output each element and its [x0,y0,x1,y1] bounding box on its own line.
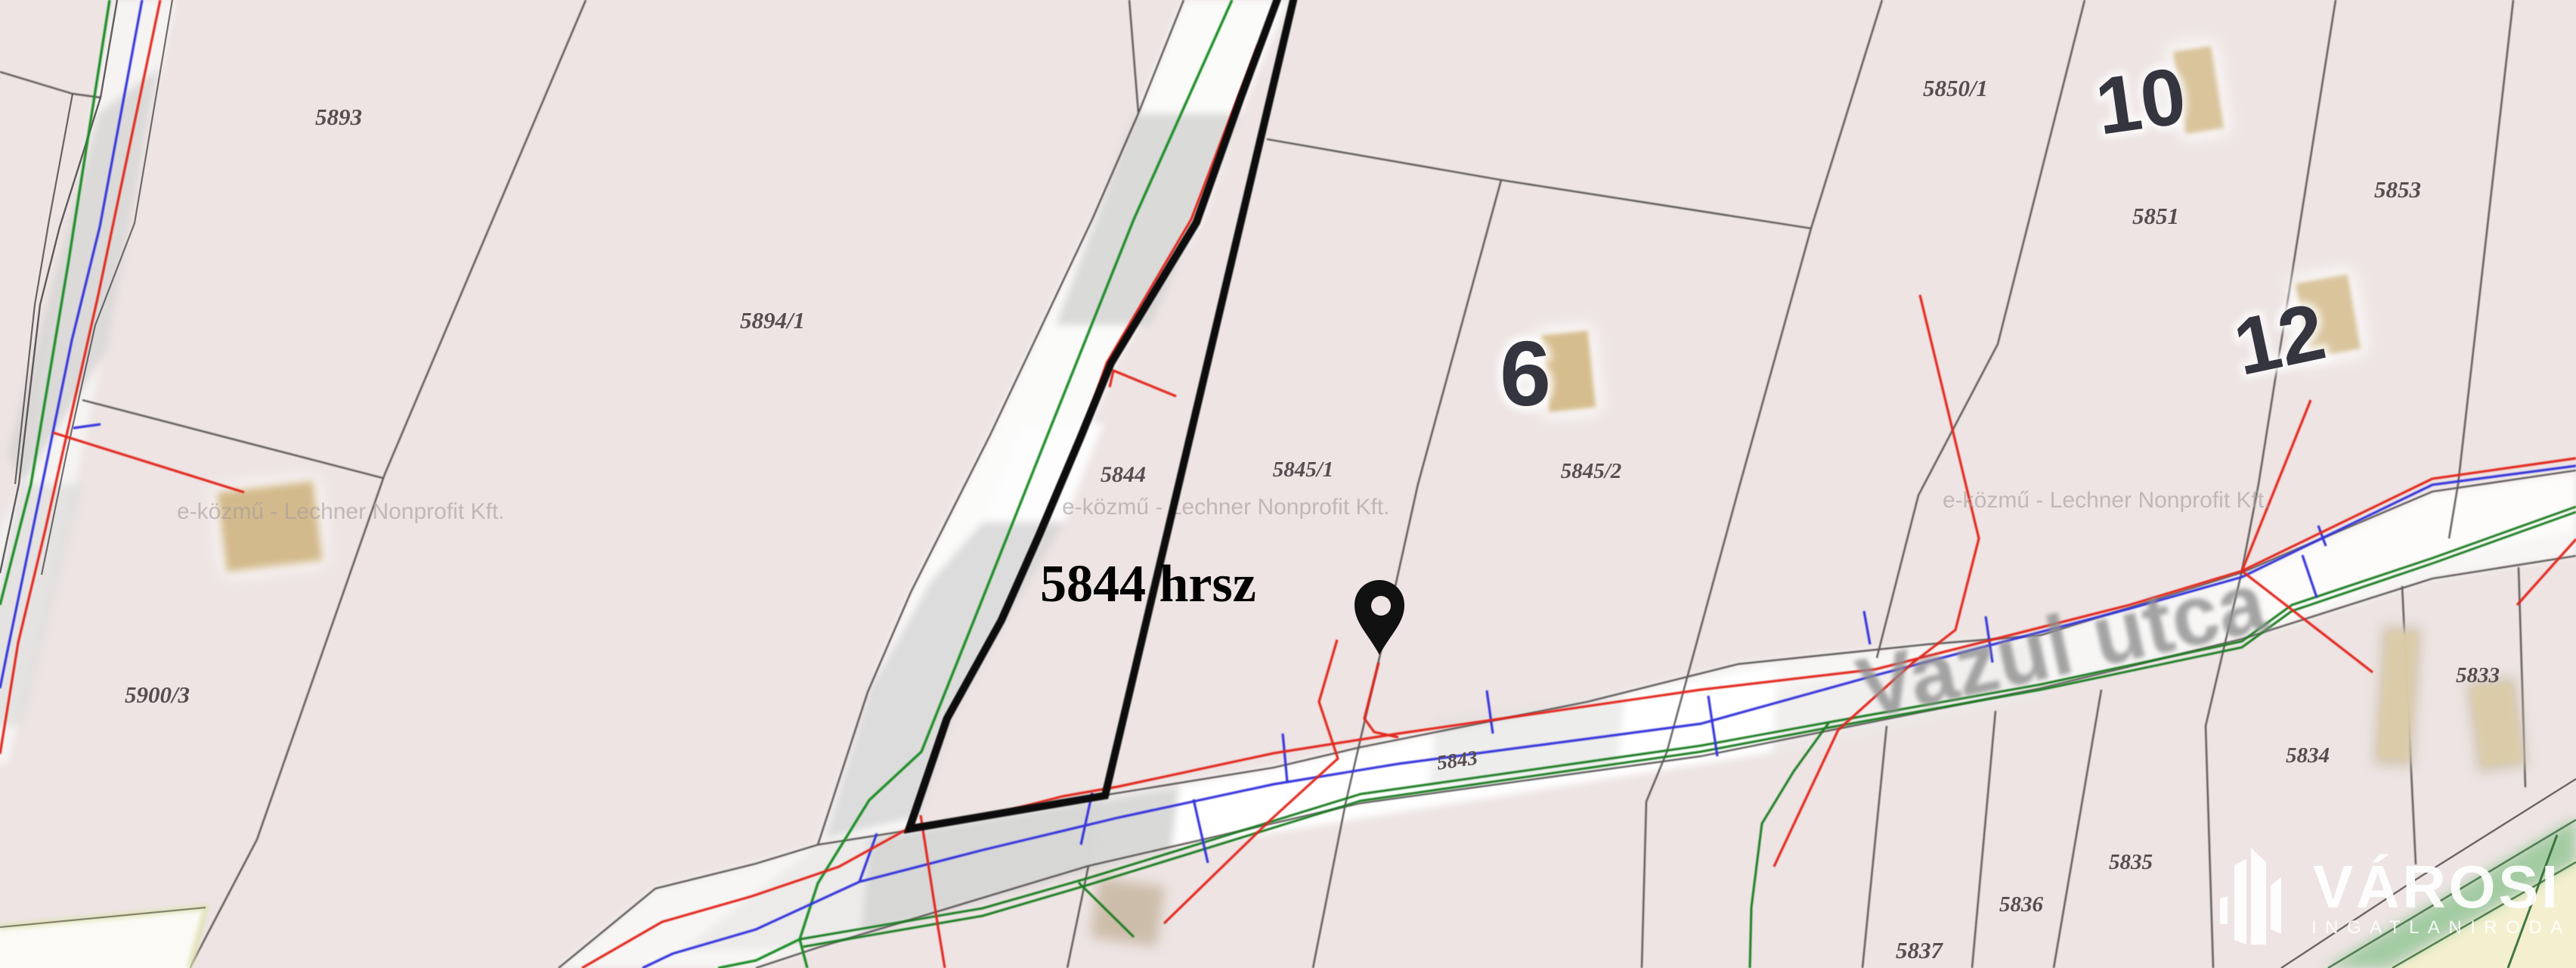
svg-text:INGATLANIRODA: INGATLANIRODA [2311,917,2571,938]
svg-text:e-közmű - Lechner Nonprofit Kf: e-közmű - Lechner Nonprofit Kft. [1943,488,2271,513]
svg-text:e-közmű - Lechner Nonprofit Kf: e-közmű - Lechner Nonprofit Kft. [1062,495,1390,520]
svg-text:e-közmű - Lechner Nonprofit Kf: e-közmű - Lechner Nonprofit Kft. [177,499,505,524]
svg-text:5900/3: 5900/3 [125,681,190,708]
svg-text:VÁROSI: VÁROSI [2313,853,2561,920]
svg-text:5894/1: 5894/1 [740,307,805,334]
svg-text:5844 hrsz: 5844 hrsz [1040,555,1256,613]
svg-text:5845/2: 5845/2 [1561,459,1622,483]
svg-text:5837: 5837 [1896,937,1944,963]
svg-text:5853: 5853 [2374,176,2421,203]
svg-text:5844: 5844 [1101,462,1146,487]
svg-text:10: 10 [2091,51,2191,151]
svg-text:6: 6 [1500,322,1551,425]
svg-text:5834: 5834 [2286,743,2330,768]
svg-text:5833: 5833 [2456,663,2500,687]
svg-text:5835: 5835 [2109,850,2153,874]
svg-text:5845/1: 5845/1 [1273,458,1334,482]
svg-text:12: 12 [2227,287,2333,392]
svg-text:5836: 5836 [1999,892,2044,917]
svg-text:5850/1: 5850/1 [1923,75,1988,101]
svg-text:5851: 5851 [2132,203,2179,229]
svg-text:5893: 5893 [315,104,362,130]
